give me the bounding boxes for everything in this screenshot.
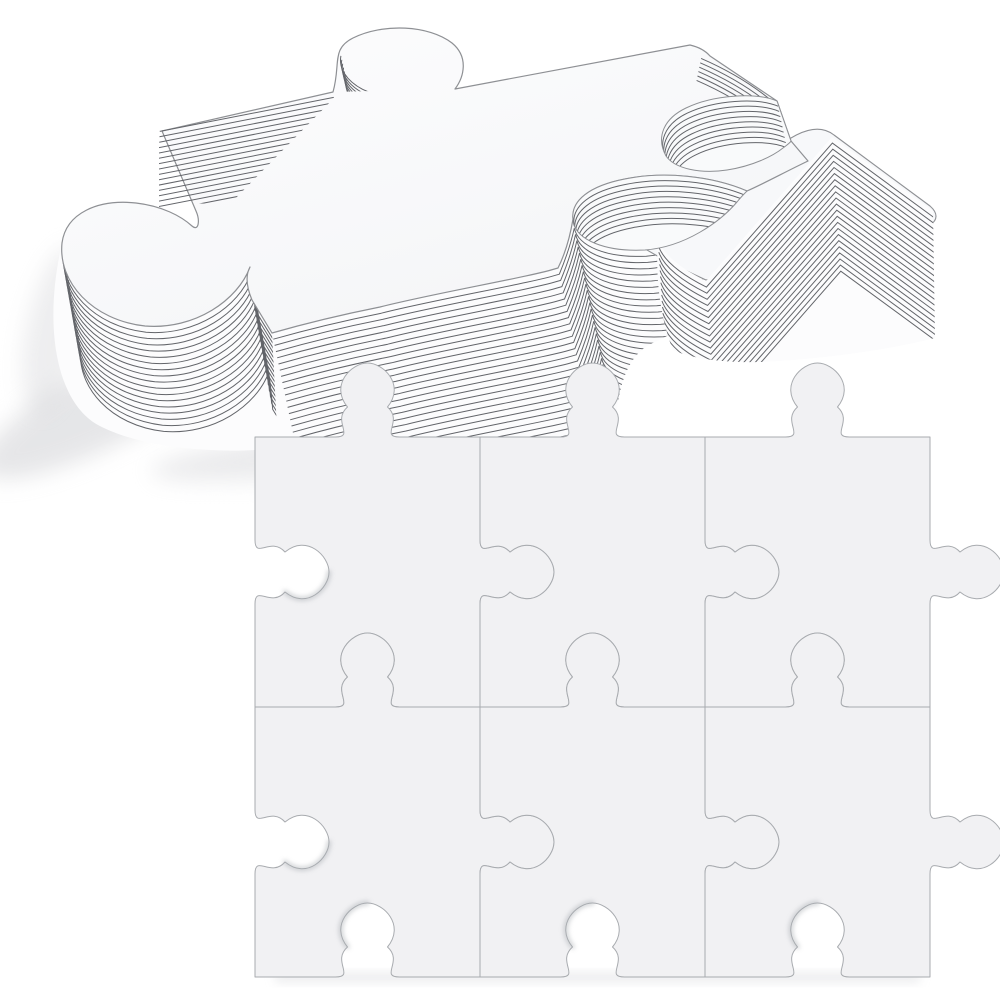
grid-bottom-shadow bbox=[275, 973, 920, 982]
product-photo-blank-puzzle-pieces: Stack of blank white jigsaw puzzle piece… bbox=[0, 0, 1000, 1000]
assembled-puzzle-grid bbox=[255, 363, 1000, 977]
blank-puzzle-illustration: Stack of blank white jigsaw puzzle piece… bbox=[0, 0, 1000, 1000]
puzzle-piece-r1c3 bbox=[705, 363, 1000, 707]
